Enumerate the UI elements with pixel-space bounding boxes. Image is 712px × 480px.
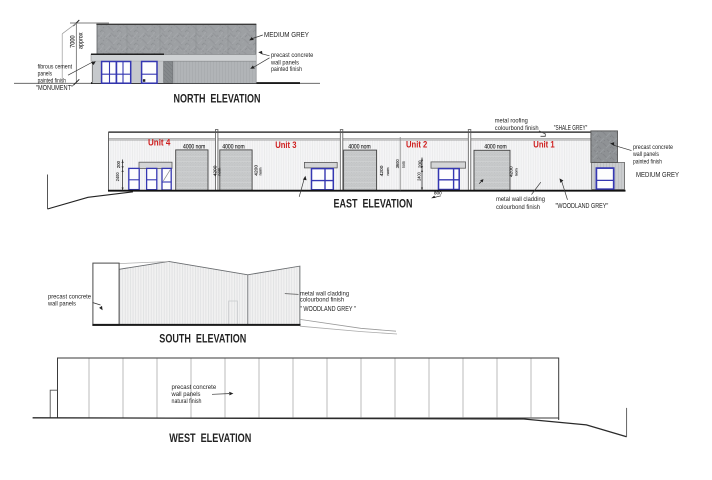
svg-text:4000 nom: 4000 nom (183, 144, 205, 151)
svg-text:Unit 3: Unit 3 (275, 140, 296, 150)
svg-text:2400: 2400 (115, 172, 120, 181)
svg-text:wall panels: wall panels (632, 151, 659, 158)
svg-text:Unit 4: Unit 4 (148, 137, 170, 147)
svg-text:natural finish: natural finish (172, 398, 202, 405)
svg-text:fibrous cement: fibrous cement (38, 63, 73, 70)
svg-text:SOUTH ELEVATION: SOUTH ELEVATION (159, 332, 246, 346)
svg-text:wall panels: wall panels (171, 391, 201, 398)
svg-text:nom: nom (216, 167, 221, 176)
svg-text:panels: panels (38, 70, 53, 77)
svg-text:precast concrete: precast concrete (48, 293, 91, 300)
svg-text:nom: nom (257, 167, 262, 176)
svg-text:MEDIUM GREY: MEDIUM GREY (264, 31, 309, 39)
svg-text:Unit 2: Unit 2 (406, 140, 427, 150)
svg-text:3600: 3600 (395, 159, 400, 168)
svg-text:" WOODLAND GREY ": " WOODLAND GREY " (300, 305, 356, 313)
svg-text:4200: 4200 (379, 165, 384, 176)
svg-text:Unit 1: Unit 1 (533, 140, 554, 150)
svg-text:colourbond finish: colourbond finish (495, 125, 539, 132)
svg-text:4000 nom: 4000 nom (222, 144, 244, 151)
svg-text:800: 800 (434, 191, 442, 196)
svg-text:precast concrete: precast concrete (172, 384, 217, 391)
svg-text:200: 200 (116, 161, 121, 169)
svg-text:painted finish: painted finish (271, 66, 302, 73)
svg-text:"WOODLAND GREY": "WOODLAND GREY" (556, 202, 609, 210)
svg-text:wall panels: wall panels (47, 301, 76, 308)
svg-text:nom: nom (514, 168, 519, 177)
svg-text:4000 nom: 4000 nom (348, 144, 370, 151)
svg-text:colourbond finish: colourbond finish (496, 204, 540, 211)
svg-text:WEST ELEVATION: WEST ELEVATION (169, 431, 251, 445)
svg-text:metal roofing: metal roofing (495, 118, 528, 125)
svg-text:2400: 2400 (417, 172, 422, 181)
svg-text:NORTH ELEVATION: NORTH ELEVATION (174, 92, 261, 106)
svg-text:"SHALE GREY": "SHALE GREY" (554, 124, 588, 132)
svg-text:"MONUMENT": "MONUMENT" (36, 85, 73, 92)
svg-text:approx: approx (78, 33, 84, 50)
svg-text:colourbond finish: colourbond finish (300, 297, 344, 304)
svg-text:4000 nom: 4000 nom (484, 144, 506, 151)
svg-text:metal wall cladding: metal wall cladding (496, 196, 545, 203)
svg-text:precast concrete: precast concrete (271, 52, 313, 59)
svg-text:painted finish: painted finish (633, 159, 662, 166)
svg-text:200: 200 (417, 160, 422, 168)
svg-text:7000: 7000 (70, 35, 77, 48)
svg-text:EAST ELEVATION: EAST ELEVATION (334, 197, 413, 211)
svg-text:MEDIUM GREY: MEDIUM GREY (636, 171, 679, 179)
svg-text:nom: nom (401, 161, 406, 169)
svg-text:nom: nom (385, 167, 390, 176)
svg-text:precast concrete: precast concrete (633, 144, 673, 151)
svg-text:painted finish: painted finish (38, 77, 66, 84)
